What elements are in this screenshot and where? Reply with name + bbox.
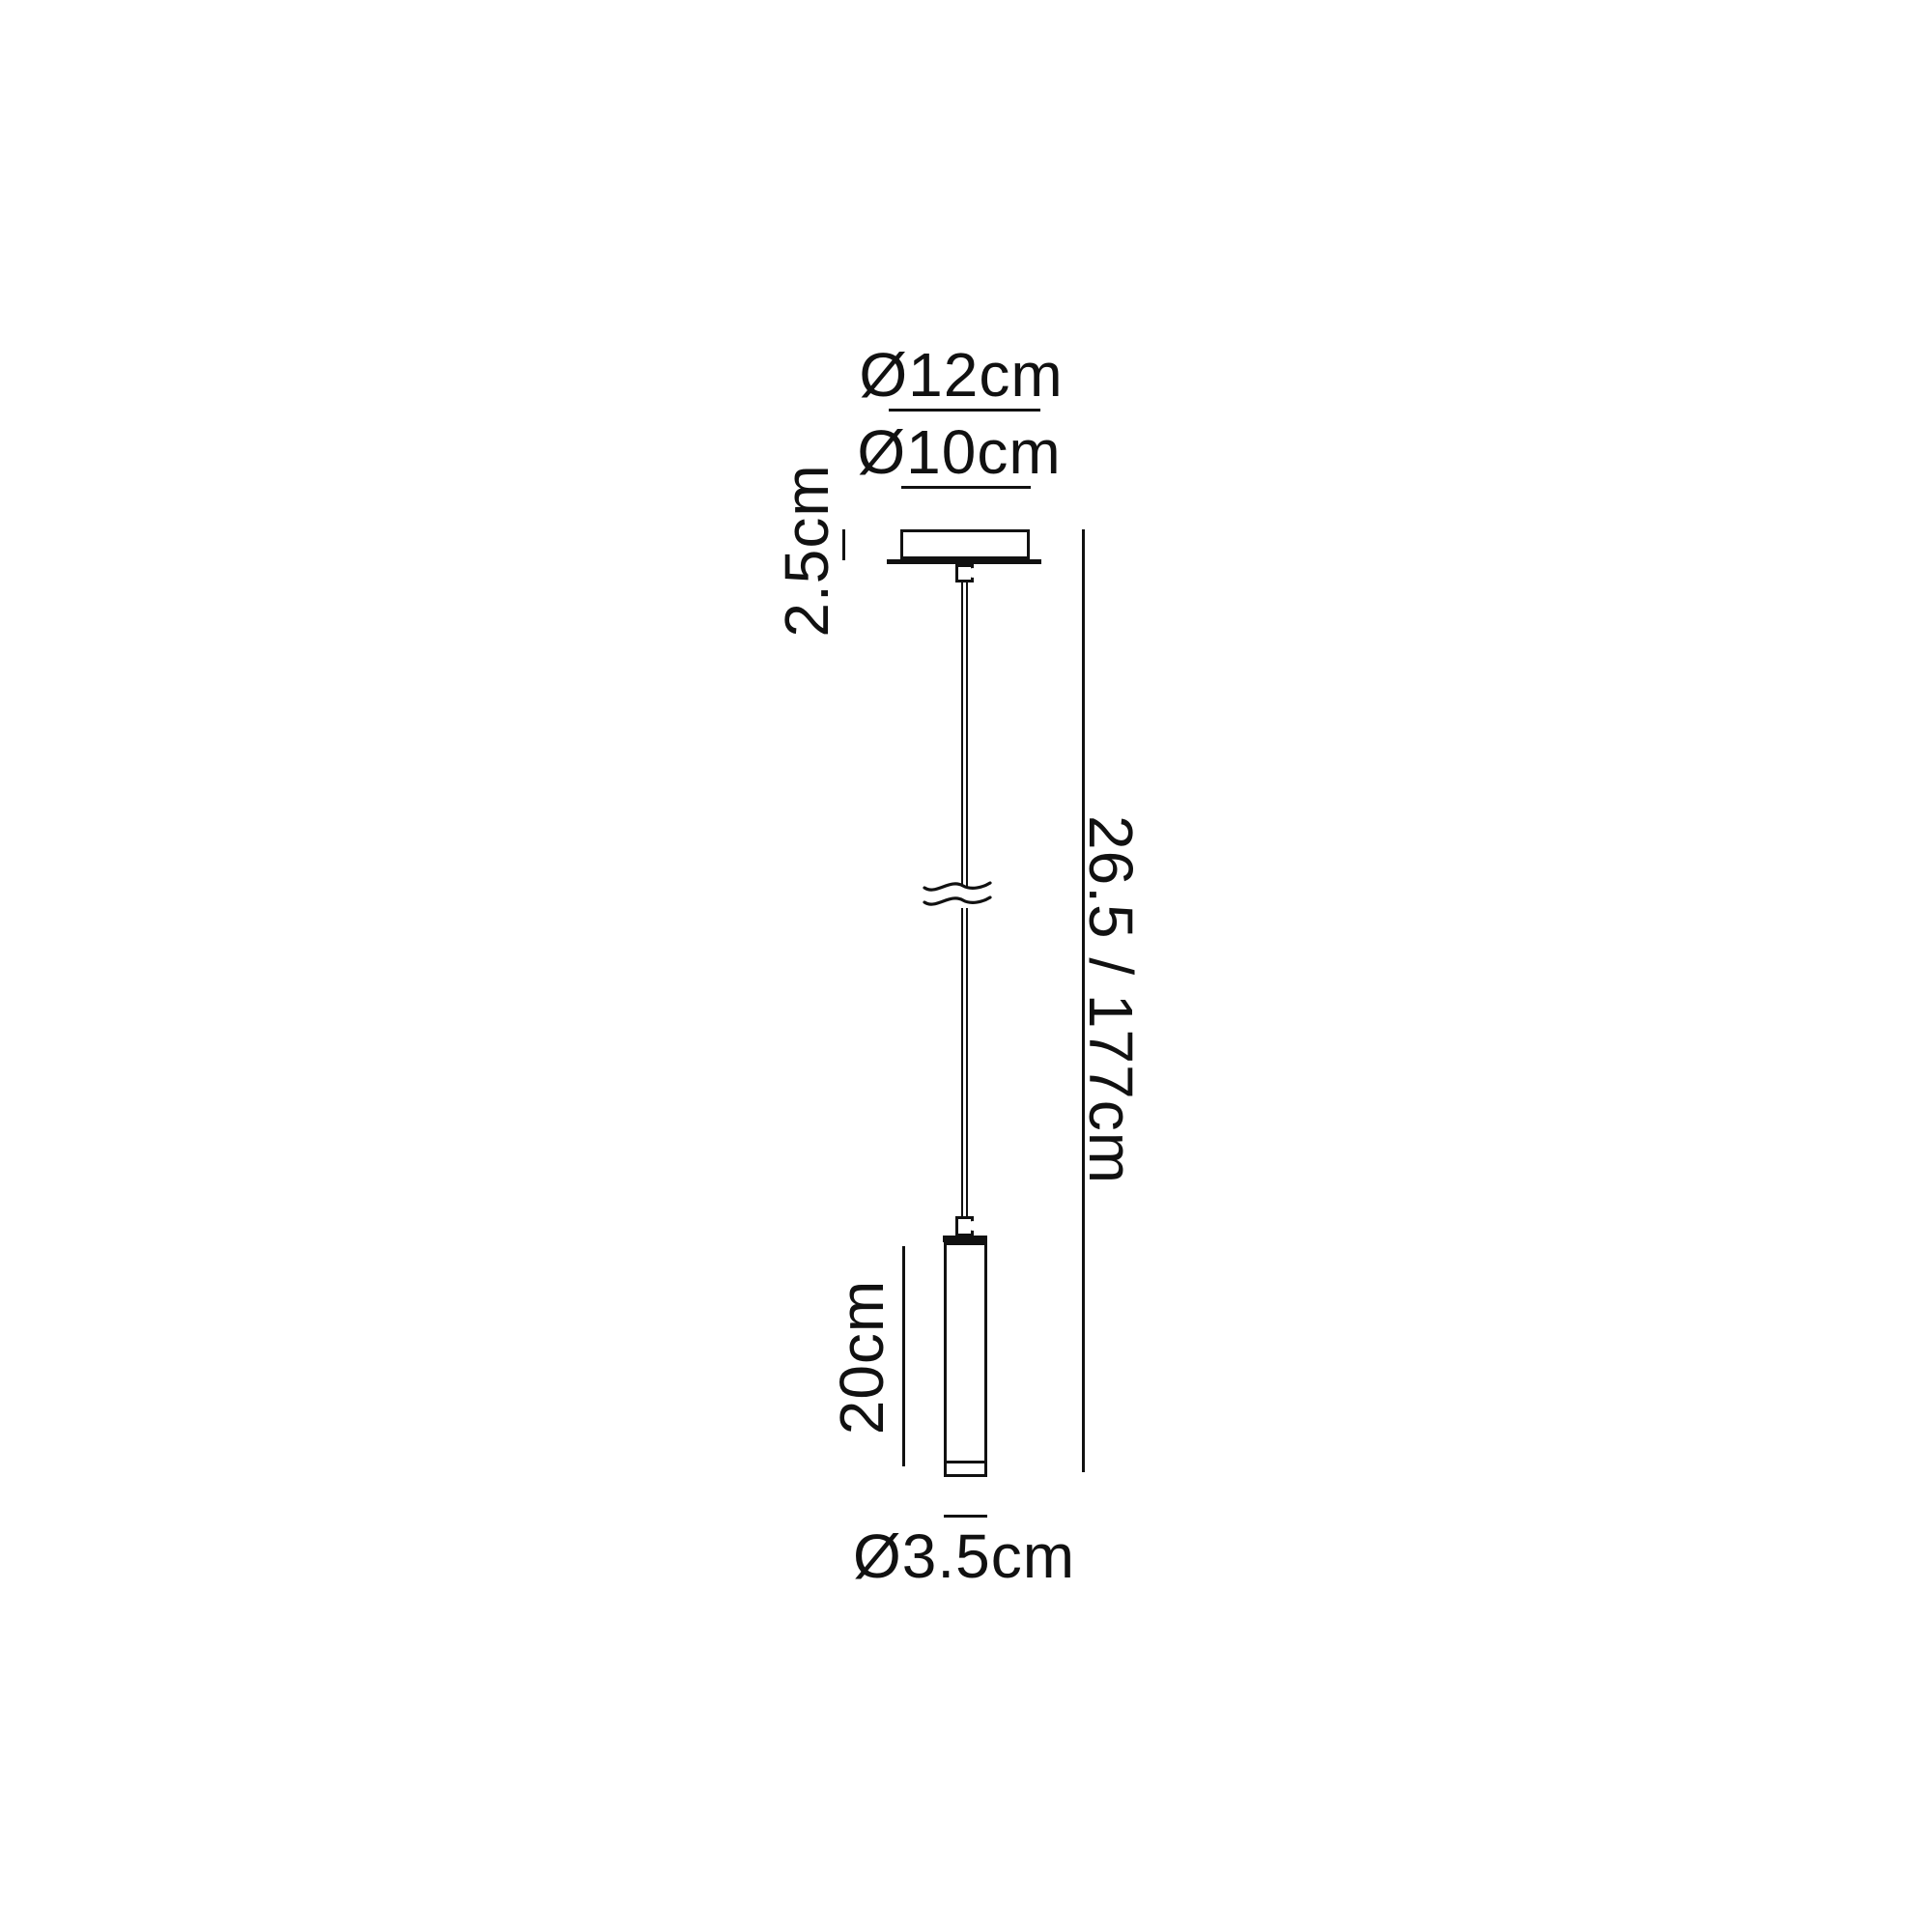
label-shade-diameter: Ø3.5cm [853,1525,1075,1587]
cord-connector-bottom-notch [968,1221,978,1231]
canopy-diameter-extent-line [901,486,1031,489]
canopy-outline [900,529,1030,559]
shade-top-cap [943,1236,987,1242]
shade-bottom-ring [944,1461,987,1477]
shade-height-dimension-line [902,1246,905,1466]
label-canopy-diameter: Ø10cm [857,421,1061,483]
canopy-height-tick [842,529,845,560]
label-shade-height: 20cm [831,1280,893,1435]
label-overall-drop: 26.5 / 177cm [1080,815,1142,1184]
label-canopy-height: 2.5cm [776,464,838,637]
shade-diameter-tick [944,1515,987,1518]
pendant-dimension-diagram: Ø12cm Ø10cm 2.5cm 26.5 / 177cm 20cm Ø3.5… [0,0,1932,1932]
cable-break-icon [921,875,994,920]
label-canopy-plate-diameter: Ø12cm [859,344,1063,406]
shade-outline [944,1242,987,1463]
cord-connector-top-notch [968,568,978,578]
canopy-plate-diameter-extent-line [889,409,1040,412]
